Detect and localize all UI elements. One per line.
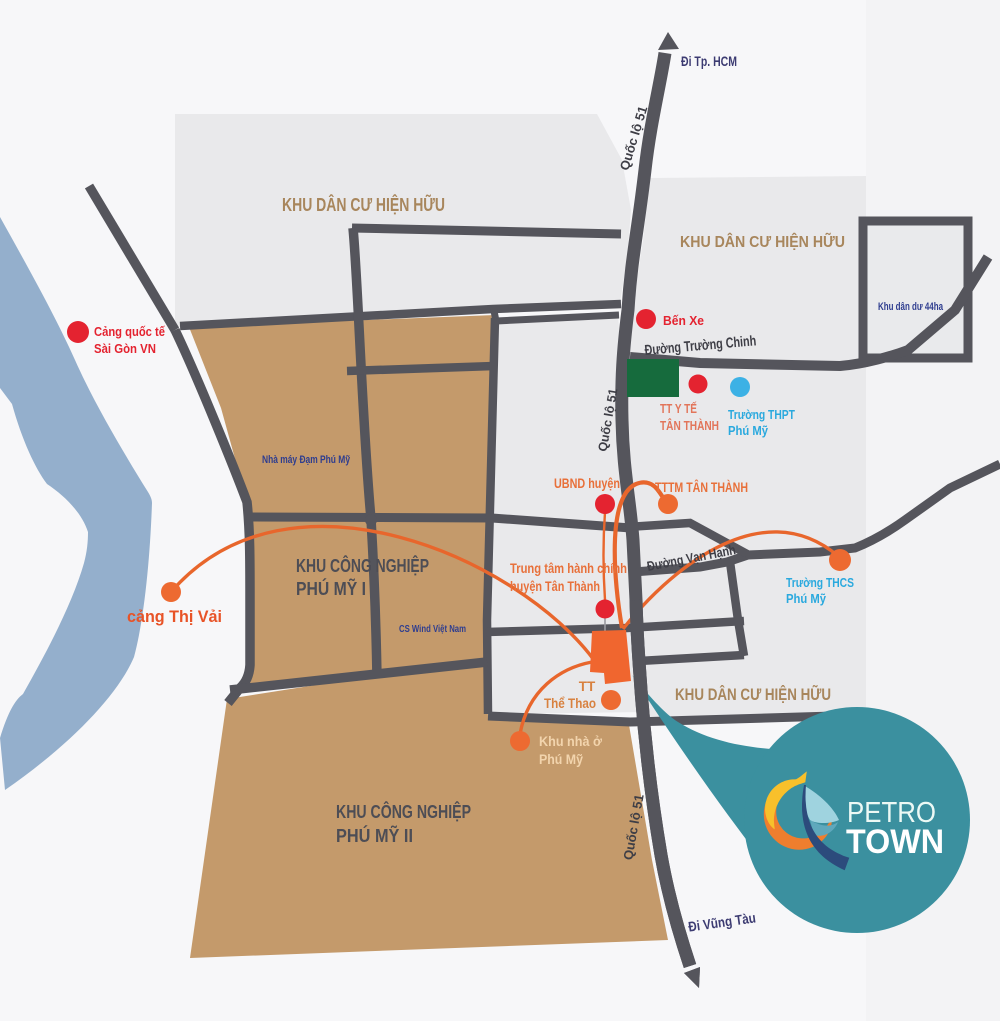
svg-text:KHU DÂN CƯ HIỆN HỮU: KHU DÂN CƯ HIỆN HỮU [675,684,831,704]
svg-text:Phú Mỹ: Phú Mỹ [786,592,826,606]
svg-text:TT: TT [579,679,596,694]
svg-text:Bến Xe: Bến Xe [663,314,704,328]
svg-text:Trường THPT: Trường THPT [728,408,795,422]
svg-text:Phú Mỹ: Phú Mỹ [728,424,768,438]
svg-text:Phú Mỹ: Phú Mỹ [539,752,583,767]
svg-text:TOWN: TOWN [846,823,944,861]
svg-text:PHÚ MỸ I: PHÚ MỸ I [296,578,366,599]
svg-text:CS Wind Việt Nam: CS Wind Việt Nam [399,623,466,635]
svg-text:PHÚ MỸ II: PHÚ MỸ II [336,825,413,846]
svg-text:UBND huyện: UBND huyện [554,475,620,491]
svg-text:KHU CÔNG NGHIỆP: KHU CÔNG NGHIỆP [296,555,429,576]
svg-text:Cảng quốc tế: Cảng quốc tế [94,325,165,339]
svg-text:Trung tâm hành chính: Trung tâm hành chính [510,561,627,576]
svg-text:KHU DÂN CƯ HIỆN HỮU: KHU DÂN CƯ HIỆN HỮU [282,194,445,215]
svg-text:TÂN THÀNH: TÂN THÀNH [660,418,719,433]
svg-text:cảng Thị Vải: cảng Thị Vải [127,608,222,626]
svg-text:Nhà máy Đạm Phú Mỹ: Nhà máy Đạm Phú Mỹ [262,454,351,466]
svg-text:KHU DÂN CƯ HIỆN HỮU: KHU DÂN CƯ HIỆN HỮU [680,233,845,251]
svg-text:Trường THCS: Trường THCS [786,576,854,590]
svg-text:huyện Tân Thành: huyện Tân Thành [510,579,600,594]
svg-text:Khu nhà ở: Khu nhà ở [539,734,602,749]
svg-text:Đi Tp. HCM: Đi Tp. HCM [681,53,737,69]
svg-text:TTTM TÂN THÀNH: TTTM TÂN THÀNH [655,480,748,495]
svg-text:Sài Gòn VN: Sài Gòn VN [94,342,156,356]
svg-text:TT Y TẾ: TT Y TẾ [660,401,697,416]
svg-text:KHU CÔNG NGHIỆP: KHU CÔNG NGHIỆP [336,801,471,822]
svg-text:Khu dân dư 44ha: Khu dân dư 44ha [878,301,944,313]
svg-text:Thể Thao: Thể Thao [544,696,596,711]
